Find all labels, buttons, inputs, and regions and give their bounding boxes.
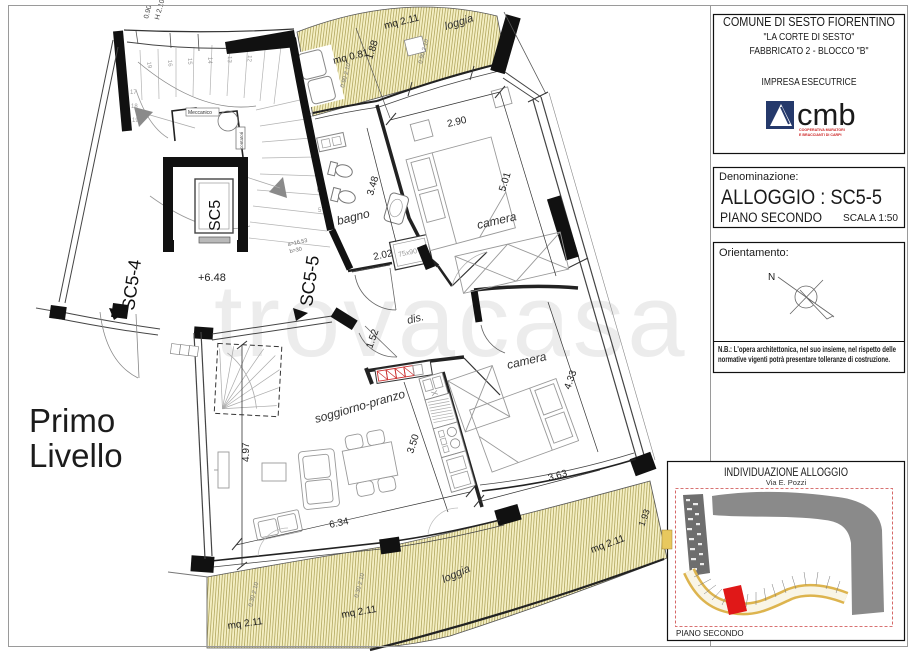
svg-text:cmb: cmb xyxy=(797,97,856,132)
svg-text:IMPRESA ESECUTRICE: IMPRESA ESECUTRICE xyxy=(762,77,857,88)
svg-text:Denominazione:: Denominazione: xyxy=(719,171,799,183)
svg-text:+6.48: +6.48 xyxy=(198,272,226,284)
svg-text:Primo: Primo xyxy=(29,402,115,439)
svg-text:15: 15 xyxy=(186,58,192,66)
svg-text:17: 17 xyxy=(130,90,137,96)
svg-text:14: 14 xyxy=(206,57,212,64)
svg-text:SC5: SC5 xyxy=(207,200,224,231)
svg-text:COOPERATIVA MURATORI: COOPERATIVA MURATORI xyxy=(799,128,845,132)
svg-text:13: 13 xyxy=(226,56,232,64)
svg-text:SCALA 1:50: SCALA 1:50 xyxy=(843,212,898,224)
svg-text:"LA CORTE DI SESTO": "LA CORTE DI SESTO" xyxy=(764,32,855,43)
svg-text:Via E. Pozzi: Via E. Pozzi xyxy=(766,478,807,487)
svg-text:PIANO SECONDO: PIANO SECONDO xyxy=(720,210,822,225)
svg-text:N: N xyxy=(768,272,775,283)
svg-text:12: 12 xyxy=(245,55,251,63)
svg-text:PIANO SECONDO: PIANO SECONDO xyxy=(676,629,744,638)
svg-text:ALLOGGIO : SC5-5: ALLOGGIO : SC5-5 xyxy=(721,186,882,209)
svg-text:4.97: 4.97 xyxy=(241,442,252,462)
svg-text:Orientamento:: Orientamento: xyxy=(719,247,789,259)
svg-text:normative vigenti potrà presen: normative vigenti potrà presentare tolle… xyxy=(718,355,890,364)
svg-text:COMUNE DI SESTO FIORENTINO: COMUNE DI SESTO FIORENTINO xyxy=(723,15,895,29)
svg-text:16: 16 xyxy=(166,60,173,68)
svg-text:contatori: contatori xyxy=(239,132,244,149)
svg-text:E BRACCIANTI DI CARPI: E BRACCIANTI DI CARPI xyxy=(799,133,842,137)
svg-text:N.B.: L'opera architettonica,: N.B.: L'opera architettonica, nel suo in… xyxy=(718,345,897,354)
svg-text:Meccanico: Meccanico xyxy=(188,110,212,116)
svg-text:FABBRICATO 2 - BLOCCO "B": FABBRICATO 2 - BLOCCO "B" xyxy=(750,45,869,57)
svg-text:Livello: Livello xyxy=(29,437,123,474)
